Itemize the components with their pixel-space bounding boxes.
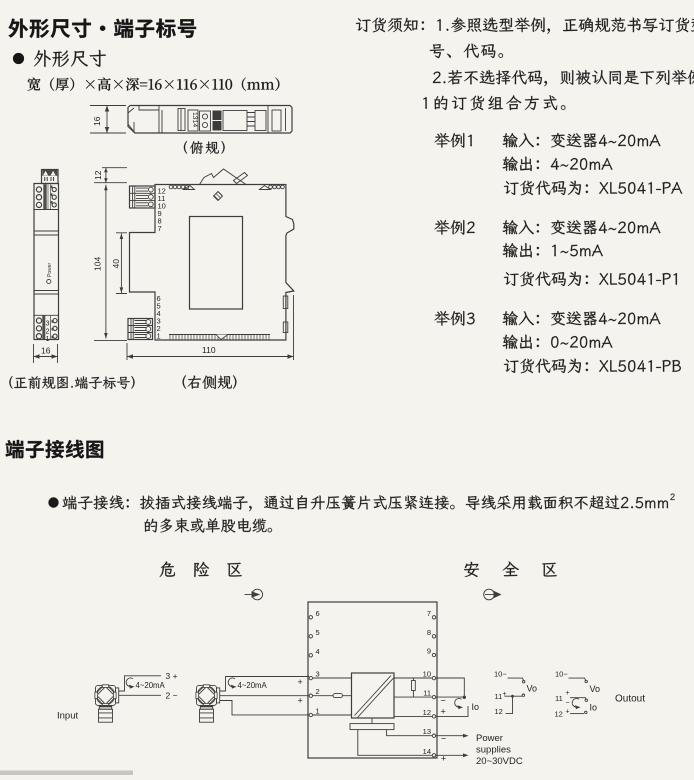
- svg-text:2: 2: [46, 328, 50, 335]
- svg-text:−: −: [441, 734, 446, 744]
- svg-text:+: +: [566, 709, 570, 716]
- svg-text:supplies: supplies: [476, 745, 511, 756]
- svg-text:−: −: [566, 700, 570, 707]
- svg-text:3: 3: [316, 670, 320, 679]
- svg-text:7: 7: [158, 224, 162, 233]
- svg-text:+: +: [566, 690, 570, 697]
- svg-text:Outout: Outout: [615, 694, 645, 705]
- svg-text:+: +: [441, 707, 446, 717]
- svg-text:6: 6: [316, 609, 320, 618]
- svg-text:13: 13: [423, 727, 431, 736]
- svg-text:−: −: [441, 696, 446, 706]
- svg-text:11: 11: [423, 689, 431, 698]
- svg-text:16: 16: [41, 346, 51, 356]
- svg-text:4~20mA: 4~20mA: [136, 681, 166, 690]
- svg-text:4~20mA: 4~20mA: [238, 681, 268, 690]
- svg-text:12: 12: [93, 170, 103, 180]
- svg-text:Power: Power: [476, 733, 503, 744]
- svg-text:7: 7: [427, 609, 431, 618]
- svg-text:20~30VDC: 20~30VDC: [476, 756, 523, 767]
- svg-text:12: 12: [495, 707, 503, 716]
- svg-text:12: 12: [555, 709, 563, 718]
- svg-text:10: 10: [423, 670, 431, 679]
- svg-text:11: 11: [555, 694, 563, 703]
- svg-text:14: 14: [423, 747, 431, 756]
- svg-text:Input: Input: [57, 711, 78, 722]
- svg-text:8: 8: [427, 628, 431, 637]
- svg-text:10−: 10−: [494, 670, 507, 679]
- svg-text:3: 3: [46, 321, 50, 328]
- svg-text:11: 11: [495, 692, 503, 701]
- svg-text:1: 1: [46, 336, 50, 343]
- svg-text:+: +: [503, 691, 507, 698]
- svg-text:2: 2: [316, 687, 320, 696]
- svg-text:2 −: 2 −: [166, 691, 178, 701]
- svg-text:5: 5: [316, 628, 320, 637]
- svg-text:1: 1: [316, 707, 320, 716]
- svg-text:9: 9: [427, 647, 431, 656]
- svg-text:+: +: [298, 677, 303, 687]
- svg-text:16: 16: [92, 116, 102, 126]
- svg-text:1: 1: [157, 332, 161, 341]
- svg-text:+: +: [441, 754, 446, 764]
- svg-text:12: 12: [423, 708, 431, 717]
- svg-text:10−: 10−: [555, 670, 568, 679]
- svg-text:3 +: 3 +: [166, 671, 178, 681]
- svg-text:1314: 1314: [191, 112, 198, 127]
- svg-text:Vo: Vo: [590, 684, 601, 694]
- svg-text:110: 110: [202, 345, 216, 355]
- svg-text:Vo: Vo: [527, 683, 538, 693]
- svg-text:Io: Io: [590, 703, 598, 713]
- svg-text:40: 40: [111, 259, 121, 269]
- svg-text:Io: Io: [472, 702, 480, 712]
- svg-text:+: +: [298, 696, 303, 706]
- svg-text:Power: Power: [47, 262, 53, 277]
- svg-text:104: 104: [93, 257, 103, 271]
- svg-text:4: 4: [316, 647, 320, 656]
